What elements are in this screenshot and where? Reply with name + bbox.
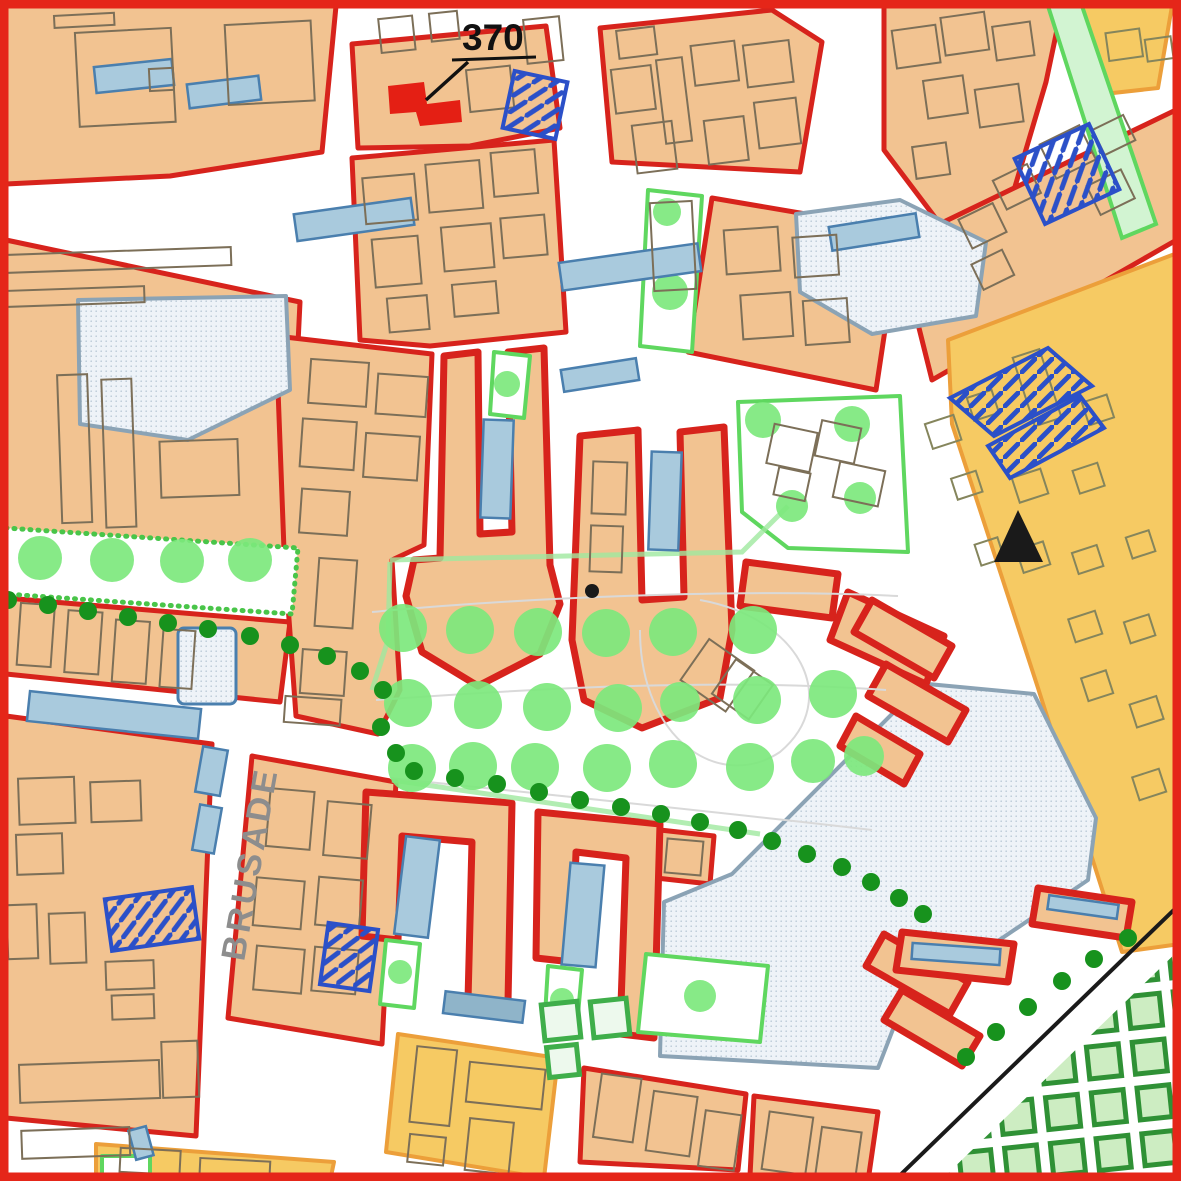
reference-dot [585, 584, 599, 598]
zoning-map-canvas[interactable]: 370 BRUSADE [0, 0, 1181, 1181]
parcel-number-label: 370 [462, 17, 524, 58]
zoning-map-viewport: 370 BRUSADE [0, 0, 1181, 1181]
